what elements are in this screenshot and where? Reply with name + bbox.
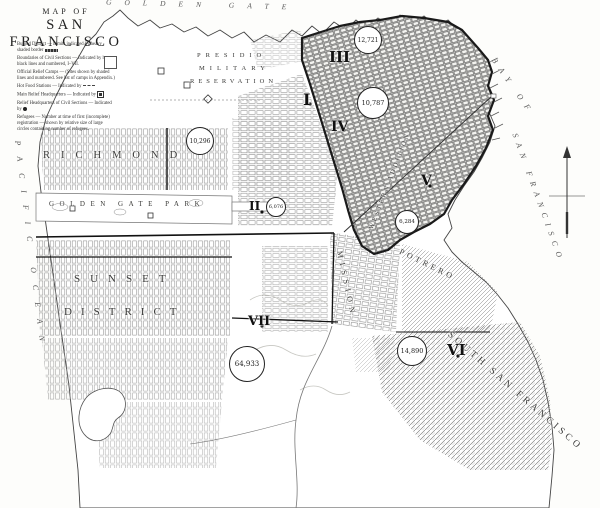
legend-item: Main Relief Headquarters — Indicated by	[17, 91, 116, 99]
section-numeral-v: V	[421, 174, 432, 188]
section-numeral-vi: VI	[447, 343, 466, 358]
ferry-building-mark	[491, 94, 496, 98]
golden-gate-park-label: GOLDEN GATE PARK	[49, 200, 205, 208]
refugee-circle-section-vi: 14,890	[397, 336, 427, 366]
relief-camp-swatch-icon	[104, 56, 117, 69]
legend-item: Relief Headquarters of Civil Sections — …	[17, 101, 116, 113]
section-numeral-vii: VII	[248, 315, 270, 328]
refugee-circle-section-iii: 12,721	[354, 26, 382, 54]
section-numeral-ii: II	[249, 200, 260, 212]
refugee-circle-section-iv: 10,787	[357, 87, 389, 119]
section-numeral-iv: IV	[331, 120, 348, 134]
main-hq-swatch-icon	[97, 91, 104, 98]
presidio-label-line1: PRESIDIO	[197, 52, 266, 59]
map-title-kicker: MAP OF	[16, 7, 116, 16]
sunset-label-line2: DISTRICT	[64, 306, 186, 318]
presidio-label-line3: RESERVATION	[190, 78, 277, 85]
legend-item: Boundaries of Civil Sections — Indicated…	[17, 56, 116, 68]
legend-item: Refugees — Number at time of first (inco…	[17, 115, 116, 134]
section-numeral-iii: III	[329, 50, 350, 65]
refugee-circle-section-ii: 6,076	[266, 197, 286, 217]
richmond-label: RICHMOND	[43, 150, 188, 161]
presidio-label-line2: MILITARY	[199, 65, 270, 72]
refugee-circle-section-vii: 64,933	[229, 346, 265, 382]
legend-item: Burned District — Limits indicated by he…	[17, 42, 116, 54]
refugee-circle-section-v: 6,284	[395, 210, 419, 234]
map-canvas: MAP OF SAN FRANCISCO Burned District — L…	[0, 0, 600, 508]
refugee-circle-section-i: 10,296	[186, 127, 214, 155]
burned-border-swatch-icon	[45, 49, 58, 52]
legend-item: Official Relief Camps — (Sites shown by …	[17, 70, 116, 82]
north-arrow	[549, 146, 585, 238]
legend-item: Hot Food Stations — Indicated by	[17, 84, 116, 90]
section-hq-swatch-icon	[23, 107, 27, 111]
section-numeral-i: I	[303, 92, 310, 108]
hot-food-station-swatch-icon	[83, 85, 95, 86]
map-legend: Burned District — Limits indicated by he…	[17, 42, 116, 135]
sunset-label-line1: SUNSET	[74, 273, 176, 285]
